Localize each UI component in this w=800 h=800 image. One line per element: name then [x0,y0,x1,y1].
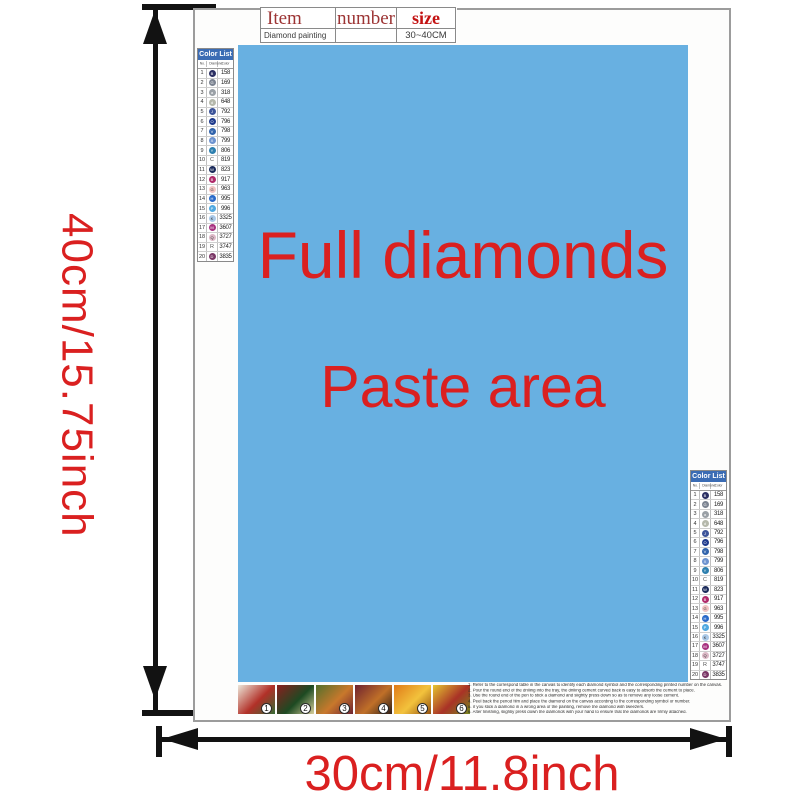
color-row: 2G169 [198,79,233,89]
dmc-color-code: 169 [711,502,726,508]
color-row-number: 6 [198,117,207,126]
number-value-cell [335,28,397,43]
color-row: 10C819 [198,156,233,166]
dmc-color-code: 158 [218,70,233,76]
color-row: 6O796 [691,538,726,547]
diamond-symbol-icon: G [209,79,216,86]
color-row: 18Q3727 [198,233,233,243]
step-number-badge: 2 [300,703,311,714]
color-row-number: 11 [198,166,207,175]
arrow-stem-horizontal [162,737,726,742]
color-row: 12B917 [691,595,726,604]
dmc-color-code: 796 [218,119,233,125]
step-thumbnails: 123456 [238,685,470,714]
color-row-number: 12 [691,595,700,603]
color-list-left: Color List No. Diamond Color 1B1582G1693… [197,48,234,262]
color-row-number: 18 [691,652,700,660]
color-row: 17M3607 [691,642,726,651]
paste-area-title-line2: Paste area [238,353,688,421]
color-row: 15P996 [691,623,726,632]
dmc-color-code: 806 [711,568,726,574]
diamond-symbol-icon: H [209,195,216,202]
color-row: 8X799 [691,557,726,566]
step-thumbnail: 4 [355,685,392,714]
step-number-badge: 3 [339,703,350,714]
color-row: 17M3607 [198,224,233,234]
dmc-color-code: 3835 [218,254,233,260]
color-row: 20D3835 [691,671,726,679]
step-thumbnail: 1 [238,685,275,714]
color-row-number: 6 [691,538,700,546]
color-list-subheader: No. Diamond Color [691,482,726,491]
dmc-color-code: 996 [218,206,233,212]
item-table-header-row: Item number size [261,8,457,29]
color-row-number: 3 [691,510,700,518]
diamond-symbol-icon: O [702,539,709,546]
diamond-symbol-icon: W [209,166,216,173]
color-row: 5J792 [198,108,233,118]
dmc-color-code: 819 [711,577,726,583]
col-symbol-header: Diamond [700,483,711,489]
col-no-header: No. [691,483,700,489]
color-row: 9Y806 [691,567,726,576]
color-row: 11W823 [691,586,726,595]
diamond-symbol-icon: G [702,501,709,508]
color-row-number: 10 [691,576,700,584]
dmc-color-code: 819 [218,157,233,163]
dmc-color-code: 3727 [218,234,233,240]
number-header-cell: number [335,7,397,29]
diamond-symbol-icon: G [702,605,709,612]
color-row: 4d648 [198,98,233,108]
diamond-symbol-icon: M [209,224,216,231]
diamond-symbol-icon: V [702,548,709,555]
color-row: 5J792 [691,529,726,538]
diamond-symbol-icon: D [702,671,709,678]
color-row-number: 4 [691,519,700,527]
color-row: 8X799 [198,137,233,147]
dmc-color-code: 799 [218,138,233,144]
col-symbol-header: Diamond [207,61,218,67]
dmc-color-code: 963 [711,606,726,612]
step-number-badge: 6 [456,703,467,714]
instruction-line: 6. After finishing, slightly press down … [468,711,723,717]
color-row: 12B917 [198,175,233,185]
size-header-cell: size [396,7,456,29]
dmc-color-code: 648 [218,99,233,105]
diamond-symbol-icon: Q [702,652,709,659]
diamond-symbol-icon: Y [702,567,709,574]
diamond-symbol-icon: V [209,128,216,135]
color-row: 13G963 [691,604,726,613]
color-row: 14H995 [198,195,233,205]
color-row-number: 14 [691,614,700,622]
dmc-color-code: 798 [711,549,726,555]
diamond-symbol-icon: W [702,586,709,593]
color-row: 16K3325 [198,214,233,224]
color-row-number: 1 [691,491,700,499]
color-list-right: Color List No. Diamond Color 1B1582G1693… [690,470,727,680]
diamond-symbol-icon: G [209,186,216,193]
color-row-number: 5 [691,529,700,537]
color-row: 11W823 [198,166,233,176]
paste-area: Full diamonds Paste area [238,45,688,682]
dmc-color-code: 792 [711,530,726,536]
color-row: 13G963 [198,185,233,195]
diamond-symbol-icon: J [209,108,216,115]
color-row-number: 7 [198,127,207,136]
step-number-badge: 4 [378,703,389,714]
dmc-color-code: 3325 [711,634,726,640]
diamond-symbol-icon: X [209,137,216,144]
color-row-number: 11 [691,586,700,594]
color-row: 7V798 [691,548,726,557]
height-dimension-label: 40cm/15.75inch [52,207,100,543]
dmc-color-code: 917 [711,596,726,602]
dmc-color-code: 3747 [218,244,233,250]
color-row: 15P996 [198,204,233,214]
dmc-color-code: 823 [711,587,726,593]
step-number-badge: 1 [261,703,272,714]
step-thumbnail: 3 [316,685,353,714]
color-row: 2G169 [691,500,726,509]
dmc-color-code: 3607 [711,643,726,649]
color-row: 3a318 [691,510,726,519]
diamond-symbol-icon: M [702,643,709,650]
item-header-cell: Item [260,7,336,29]
diamond-symbol-icon: Y [209,147,216,154]
diamond-symbol-icon: d [702,520,709,527]
color-row-number: 18 [198,233,207,242]
color-row-number: 2 [691,500,700,508]
diamond-symbol-icon: P [702,624,709,631]
color-row-number: 9 [691,567,700,575]
color-row: 19R3747 [691,661,726,670]
diamond-symbol-icon: C [210,157,214,163]
arrowhead-down-icon [143,666,167,700]
color-row: 4d648 [691,519,726,528]
diamond-symbol-icon: B [209,176,216,183]
diamond-symbol-icon: K [209,215,216,222]
dmc-color-code: 798 [218,128,233,134]
color-row-number: 7 [691,548,700,556]
color-row: 19R3747 [198,243,233,253]
color-row-number: 9 [198,146,207,155]
color-row: 6O796 [198,117,233,127]
width-dimension-label: 30cm/11.8inch [242,746,682,800]
dmc-color-code: 995 [711,615,726,621]
item-table-data-row: Diamond painting 30~40CM [261,29,457,43]
diamond-symbol-icon: O [209,118,216,125]
dmc-color-code: 3607 [218,225,233,231]
diamond-symbol-icon: R [210,244,214,250]
step-thumbnail: 6 [433,685,470,714]
color-row-number: 19 [198,243,207,252]
diamond-symbol-icon: P [209,205,216,212]
paste-area-title-line1: Full diamonds [238,217,688,293]
arrow-cap-right [726,726,732,757]
color-row: 1B158 [198,69,233,79]
dmc-color-code: 3835 [711,672,726,678]
color-row-number: 3 [198,88,207,97]
instruction-line: 1. Refer to the correspond table in the … [468,683,723,689]
color-row-number: 17 [691,642,700,650]
color-row-number: 15 [198,204,207,213]
diamond-symbol-icon: Q [209,234,216,241]
col-no-header: No. [198,61,207,67]
color-row-number: 1 [198,69,207,78]
color-row-number: 8 [691,557,700,565]
color-row: 9Y806 [198,146,233,156]
diamond-symbol-icon: C [703,577,707,583]
dmc-color-code: 318 [218,90,233,96]
color-row-number: 13 [691,604,700,612]
diamond-symbol-icon: a [209,89,216,96]
color-row: 10C819 [691,576,726,585]
dmc-color-code: 318 [711,511,726,517]
color-row-number: 8 [198,137,207,146]
dmc-color-code: 3325 [218,215,233,221]
color-row-number: 2 [198,79,207,88]
color-list-title: Color List [691,471,726,482]
item-info-table: Item number size Diamond painting 30~40C… [261,8,457,43]
dmc-color-code: 996 [711,625,726,631]
diamond-symbol-icon: B [209,70,216,77]
color-row: 20D3835 [198,252,233,261]
diamond-symbol-icon: J [702,530,709,537]
dmc-color-code: 917 [218,177,233,183]
color-row: 18Q3727 [691,652,726,661]
color-row-number: 16 [691,633,700,641]
color-row-number: 5 [198,108,207,117]
arrowhead-right-icon [690,728,726,750]
dmc-color-code: 799 [711,558,726,564]
color-row-number: 10 [198,156,207,165]
dmc-color-code: 3727 [711,653,726,659]
color-row-number: 14 [198,195,207,204]
color-row: 7V798 [198,127,233,137]
diamond-symbol-icon: R [703,662,707,668]
color-row: 1B158 [691,491,726,500]
color-rows: 1B1582G1693a3184d6485J7926O7967V7988X799… [198,69,233,261]
canvas-sheet: Item number size Diamond painting 30~40C… [193,8,731,722]
dmc-color-code: 158 [711,492,726,498]
color-row-number: 20 [691,671,700,679]
color-row: 16K3325 [691,633,726,642]
dmc-color-code: 995 [218,196,233,202]
instruction-line: 4. Peel back the period film and place t… [468,700,723,706]
dmc-color-code: 963 [218,186,233,192]
diamond-symbol-icon: X [702,558,709,565]
step-number-badge: 5 [417,703,428,714]
dmc-color-code: 169 [218,80,233,86]
diamond-symbol-icon: d [209,99,216,106]
instructions-text: 1. Refer to the correspond table in the … [468,683,723,716]
dmc-color-code: 648 [711,521,726,527]
size-value-cell: 30~40CM [396,28,456,43]
color-row-number: 12 [198,175,207,184]
color-row: 3a318 [198,88,233,98]
color-row-number: 16 [198,214,207,223]
dmc-color-code: 823 [218,167,233,173]
product-dimension-diagram: 40cm/15.75inch 30cm/11.8inch Item number… [0,0,800,800]
step-thumbnail: 5 [394,685,431,714]
dmc-color-code: 806 [218,148,233,154]
dmc-color-code: 792 [218,109,233,115]
color-row-number: 19 [691,661,700,669]
diamond-symbol-icon: D [209,253,216,260]
step-thumbnail: 2 [277,685,314,714]
color-row-number: 4 [198,98,207,107]
diamond-symbol-icon: K [702,634,709,641]
diamond-symbol-icon: B [702,492,709,499]
color-row: 14H995 [691,614,726,623]
color-list-title: Color List [198,49,233,60]
item-value-cell: Diamond painting [260,28,336,43]
color-row-number: 17 [198,224,207,233]
diamond-symbol-icon: B [702,596,709,603]
dmc-color-code: 796 [711,539,726,545]
arrow-stem-vertical [153,10,158,710]
color-rows: 1B1582G1693a3184d6485J7926O7967V7988X799… [691,491,726,679]
color-row-number: 20 [198,252,207,261]
color-row-number: 13 [198,185,207,194]
dmc-color-code: 3747 [711,662,726,668]
diamond-symbol-icon: a [702,511,709,518]
color-row-number: 15 [691,623,700,631]
color-list-subheader: No. Diamond Color [198,60,233,69]
diamond-symbol-icon: H [702,615,709,622]
